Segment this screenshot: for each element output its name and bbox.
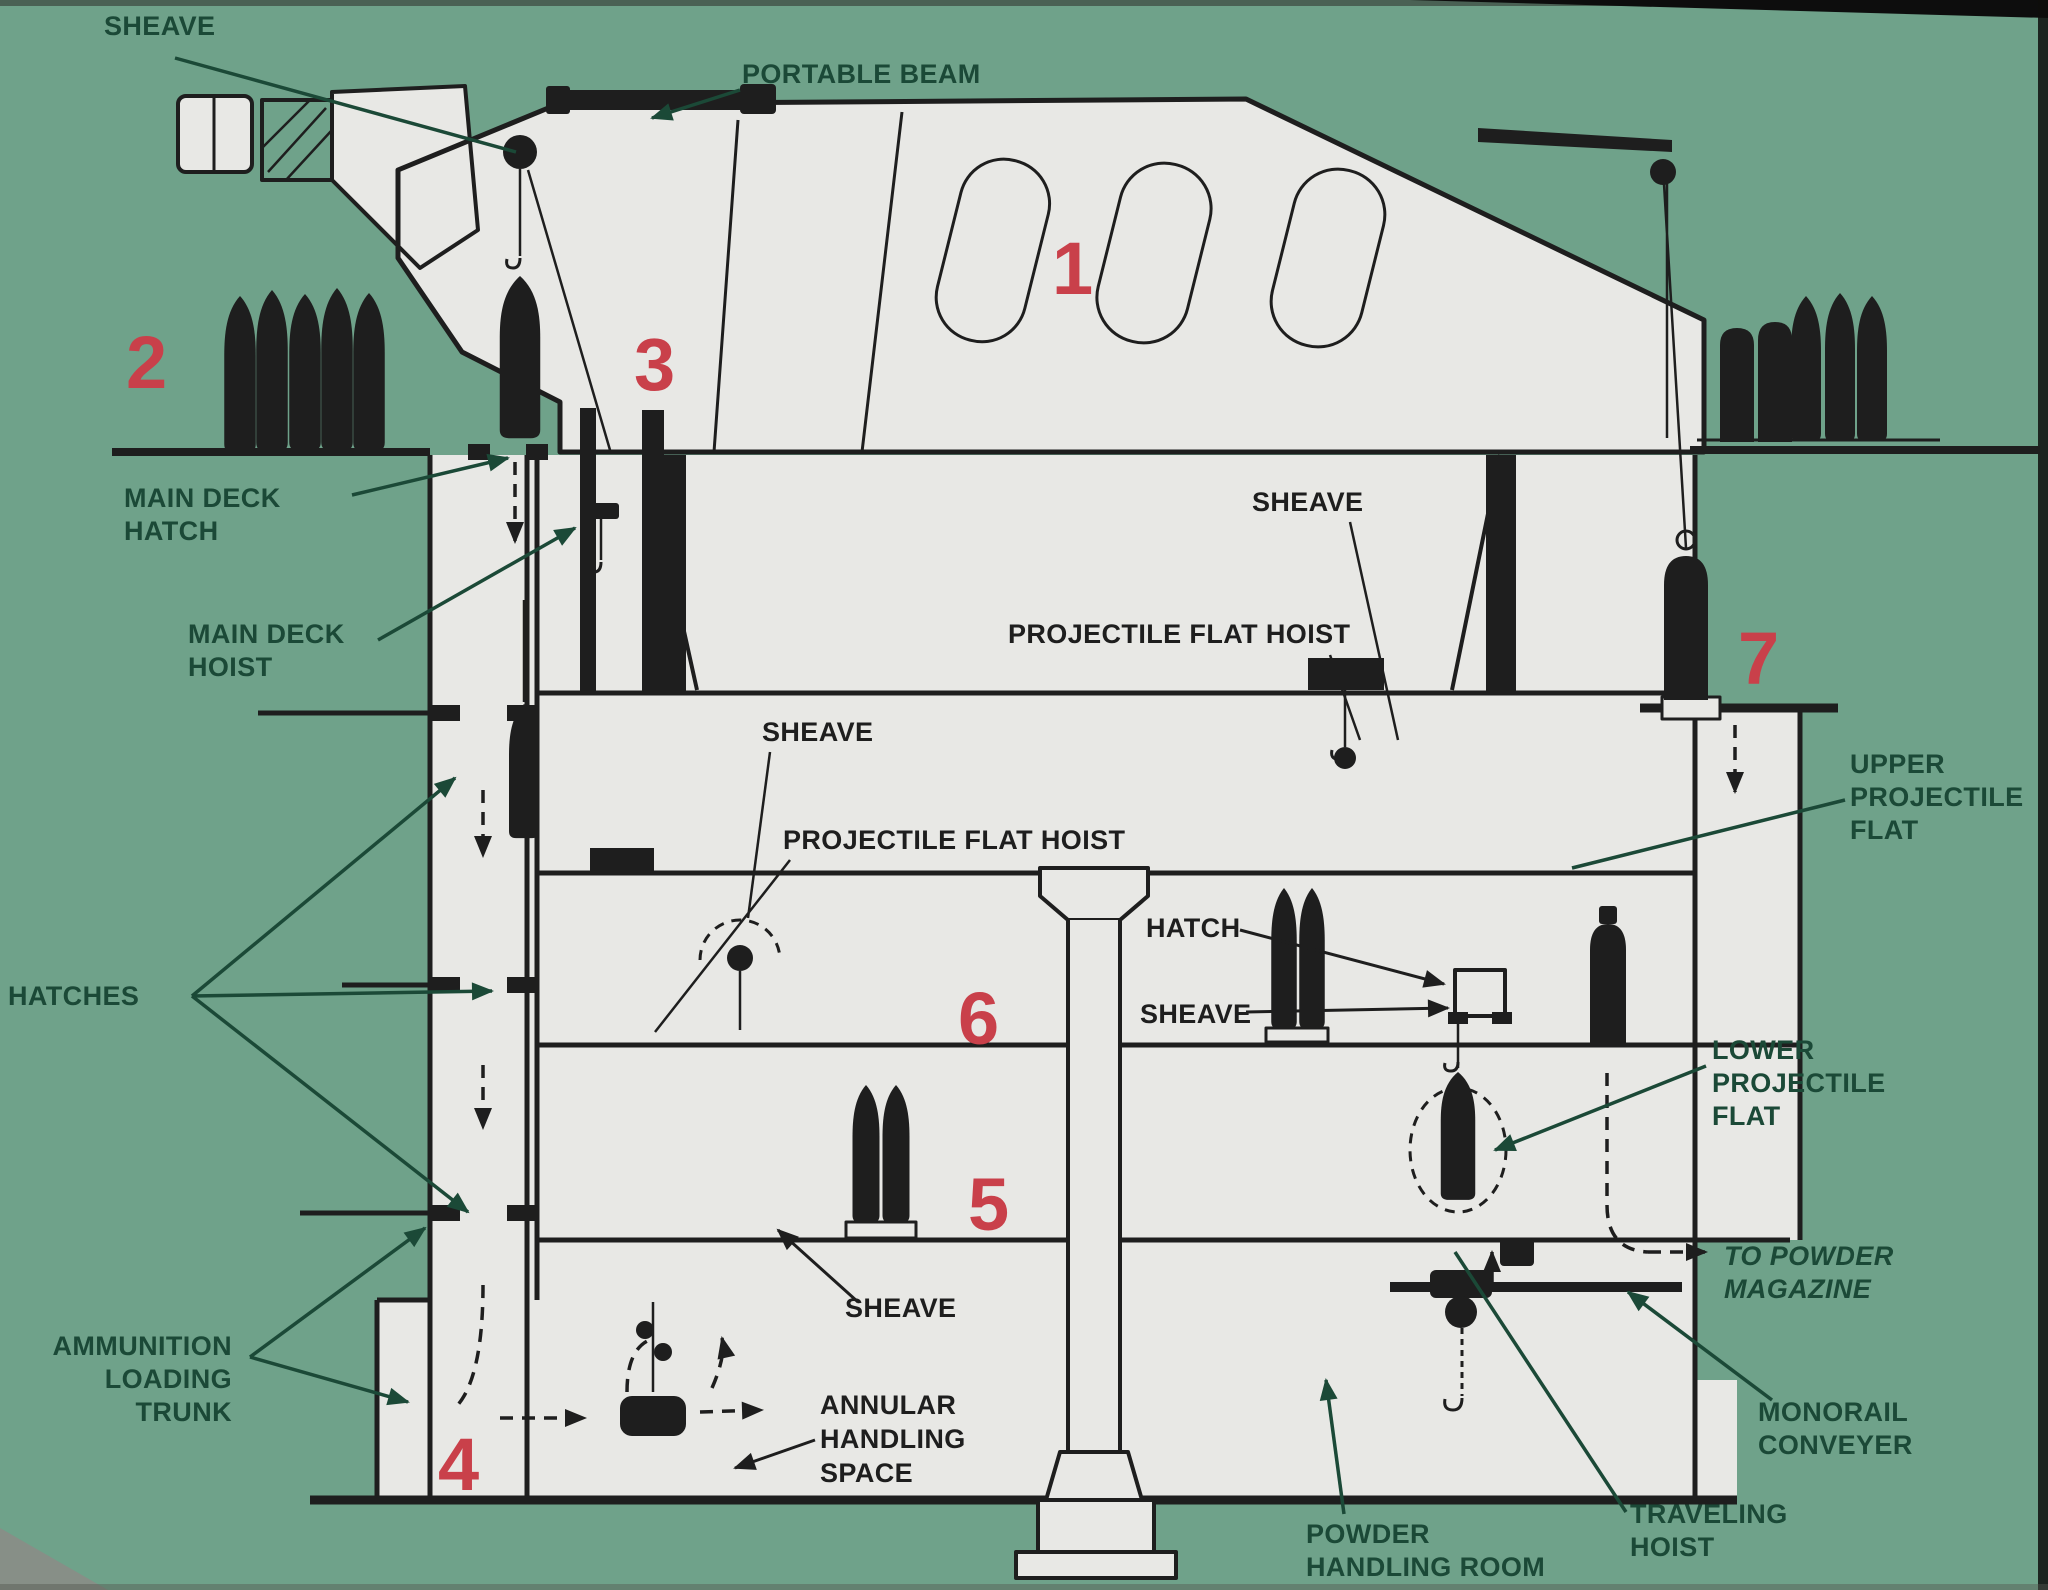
label-monorail-conveyer: MONORAIL CONVEYER bbox=[1758, 1396, 1913, 1462]
callout-number-3: 3 bbox=[634, 328, 673, 402]
left-deck-shell-group bbox=[224, 288, 385, 452]
label-hatch: HATCH bbox=[1146, 912, 1240, 945]
label-lower-projectile-flat: LOWER PROJECTILE FLAT bbox=[1712, 1034, 1886, 1133]
right-deck-shell-group bbox=[1791, 293, 1887, 441]
label-projectile-flat-hoist-right: PROJECTILE FLAT HOIST bbox=[1008, 618, 1350, 651]
label-ammunition-loading-trunk: AMMUNITION LOADING TRUNK bbox=[40, 1330, 232, 1429]
diagram-artwork bbox=[0, 0, 2048, 1590]
callout-number-1: 1 bbox=[1052, 232, 1091, 306]
label-sheave-turret: SHEAVE bbox=[1252, 486, 1363, 519]
label-projectile-flat-hoist-left: PROJECTILE FLAT HOIST bbox=[783, 824, 1125, 857]
label-annular-handling-space: ANNULAR HANDLING SPACE bbox=[820, 1388, 966, 1490]
label-main-deck-hoist: MAIN DECK HOIST bbox=[188, 618, 345, 684]
label-upper-projectile-flat: UPPER PROJECTILE FLAT bbox=[1850, 748, 2024, 847]
label-sheave-pan: SHEAVE bbox=[762, 716, 873, 749]
label-sheave-annular: SHEAVE bbox=[845, 1292, 956, 1325]
label-powder-handling-room: POWDER HANDLING ROOM bbox=[1306, 1518, 1545, 1584]
callout-number-5: 5 bbox=[968, 1168, 1007, 1242]
label-to-powder-magazine: TO POWDER MAGAZINE bbox=[1724, 1240, 1894, 1306]
callout-number-7: 7 bbox=[1738, 622, 1777, 696]
label-main-deck-hatch: MAIN DECK HATCH bbox=[124, 482, 281, 548]
callout-number-4: 4 bbox=[438, 1428, 477, 1502]
label-portable-beam: PORTABLE BEAM bbox=[742, 58, 981, 91]
turret-diagram-sign: SHEAVE PORTABLE BEAM MAIN DECK HATCH MAI… bbox=[0, 0, 2048, 1590]
callout-number-6: 6 bbox=[958, 982, 997, 1056]
label-hatches: HATCHES bbox=[8, 980, 139, 1013]
label-sheave-top: SHEAVE bbox=[104, 10, 215, 43]
label-traveling-hoist: TRAVELING HOIST bbox=[1630, 1498, 1788, 1564]
label-sheave-flat: SHEAVE bbox=[1140, 998, 1251, 1031]
callout-number-2: 2 bbox=[126, 326, 165, 400]
